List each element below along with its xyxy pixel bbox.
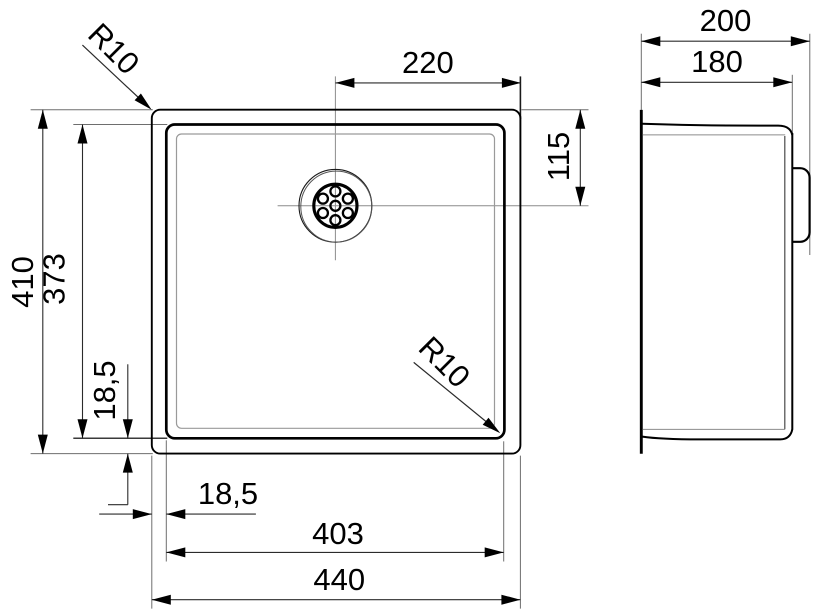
- svg-text:200: 200: [700, 3, 752, 38]
- svg-text:373: 373: [37, 253, 72, 305]
- svg-text:115: 115: [541, 132, 576, 181]
- svg-text:180: 180: [691, 44, 743, 79]
- svg-text:18,5: 18,5: [198, 476, 258, 511]
- svg-text:220: 220: [402, 45, 454, 80]
- svg-text:403: 403: [312, 516, 364, 551]
- svg-text:410: 410: [5, 256, 40, 308]
- svg-text:440: 440: [313, 562, 365, 597]
- svg-text:18,5: 18,5: [87, 360, 122, 420]
